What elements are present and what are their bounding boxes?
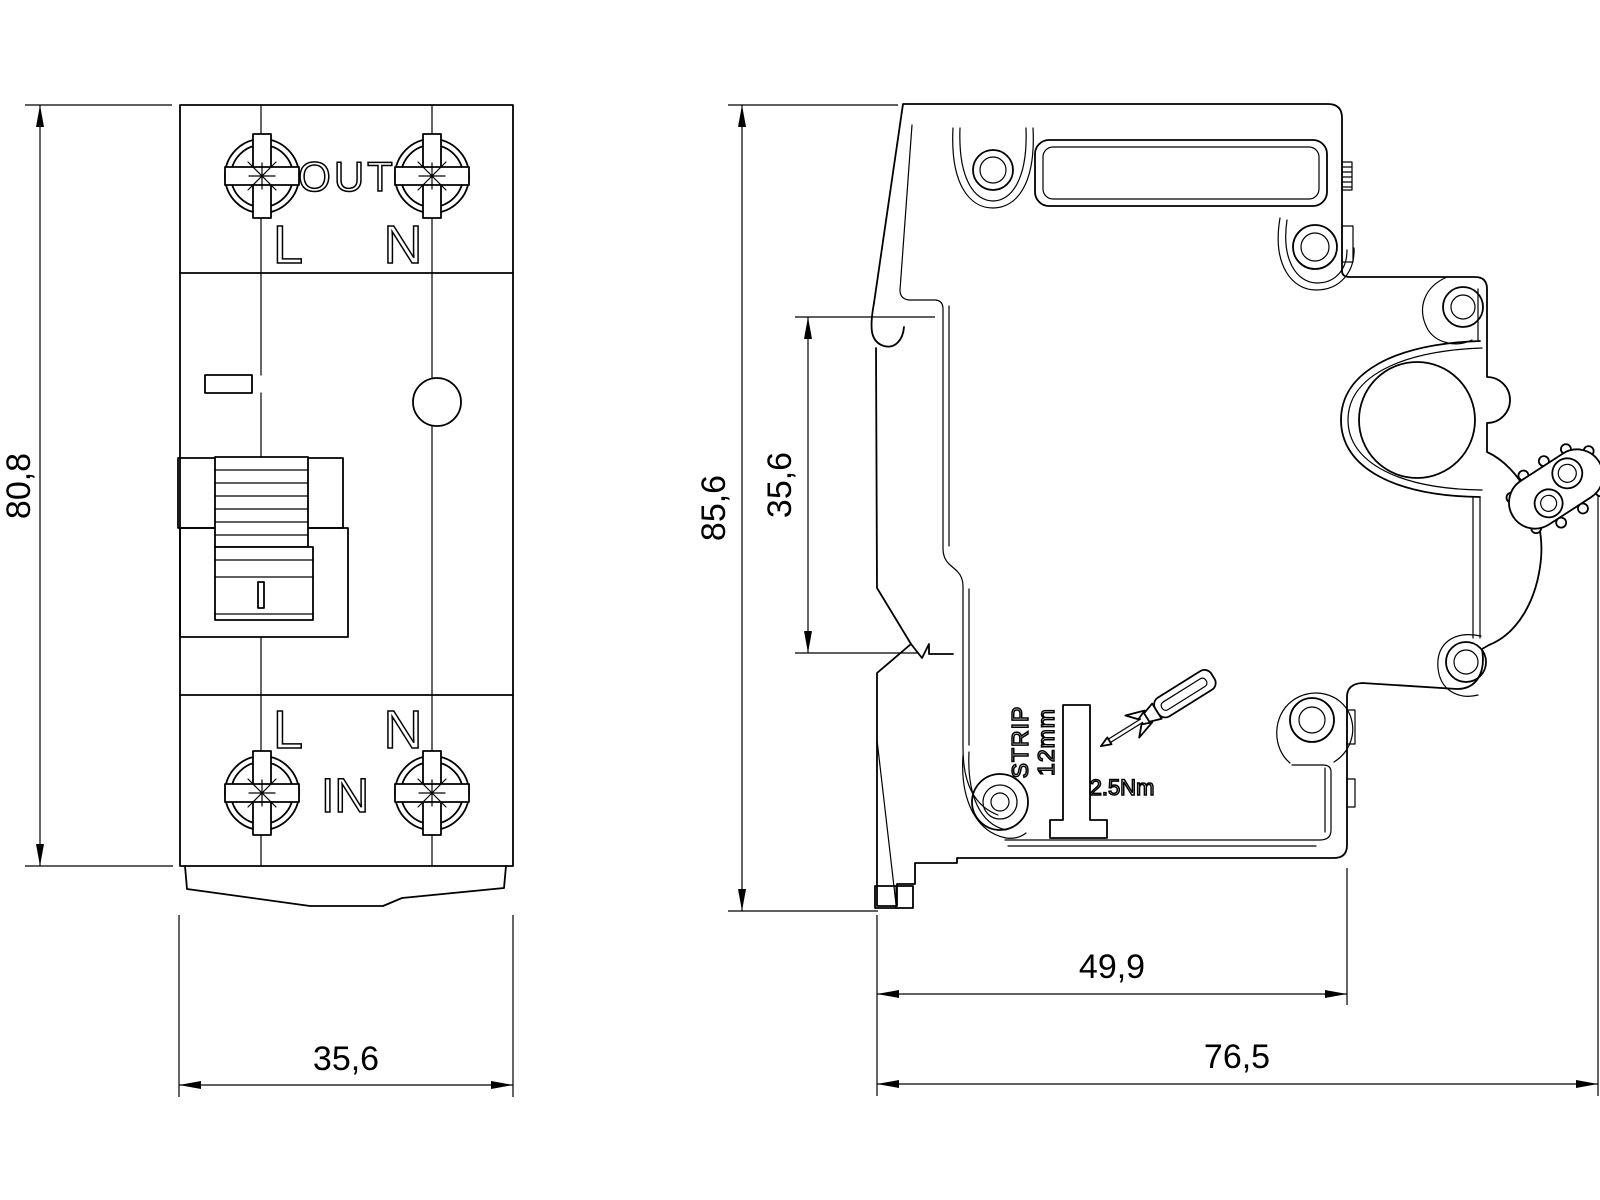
dim-text: 80,8	[0, 453, 38, 519]
dim-side-depth-total: 76,5	[877, 495, 1598, 1096]
side-body-outline	[874, 104, 1541, 906]
terminal-out-label: OUT	[298, 153, 396, 200]
rivet-outer	[972, 774, 1028, 830]
phillips-screw-out-n	[395, 134, 469, 218]
rivet-inner	[1454, 650, 1478, 674]
screwdriver-shaft	[1108, 719, 1142, 743]
terminal-in-label: IN	[321, 770, 369, 823]
screwdriver-tip	[1099, 737, 1112, 749]
arrowhead	[738, 889, 746, 911]
arrowhead	[1325, 990, 1347, 998]
rivet-inner	[980, 157, 1006, 183]
din-clip-front	[185, 866, 506, 906]
arrowhead	[804, 317, 812, 339]
rivet-boss-bottom-right	[1438, 635, 1486, 697]
adjuster-wheel	[1494, 430, 1600, 547]
rivet-outer	[1443, 287, 1483, 327]
dim-front-width: 35,6	[179, 915, 513, 1097]
rivet-boss-bottom-mid	[1277, 693, 1353, 763]
breaker-dimension-drawing: OUT L N L N IN	[0, 0, 1600, 1200]
strip-gauge-label-1: 12mm	[1033, 708, 1059, 776]
rivet-outer	[1290, 698, 1334, 742]
screwdriver-icon	[1094, 665, 1220, 757]
edge-lug	[1347, 779, 1355, 807]
arrowhead	[36, 844, 44, 866]
rivet-inner	[983, 785, 1017, 819]
phillips-screw-out-l	[225, 134, 299, 218]
dim-text: 76,5	[1204, 1038, 1270, 1076]
rivet-outer	[1446, 642, 1486, 682]
rib-block	[1342, 162, 1352, 190]
din-front-face	[876, 348, 911, 644]
line-label-top: L	[273, 215, 303, 275]
arrowhead	[491, 1081, 513, 1089]
din-top-hook	[871, 303, 904, 347]
arrowhead	[877, 990, 899, 998]
phillips-screw-in-l	[225, 751, 299, 835]
indicator-window	[413, 378, 461, 426]
rivet-outer	[1293, 225, 1337, 269]
arrowhead	[36, 105, 44, 127]
test-button	[205, 375, 252, 393]
neutral-label-bottom: N	[384, 700, 423, 760]
arrowhead	[179, 1081, 201, 1089]
edge-lug	[1342, 226, 1353, 262]
technical-drawing-page: OUT L N L N IN	[0, 0, 1600, 1200]
dim-front-height: 80,8	[0, 105, 173, 866]
arrowhead	[877, 1080, 899, 1088]
boss-pocket	[1286, 220, 1347, 283]
rear-clip-ribs	[1342, 162, 1352, 190]
strip-gauge-label-2: STRIP	[1007, 706, 1033, 779]
knob-bay-outer	[1341, 341, 1480, 497]
rivet-inner	[1301, 233, 1329, 261]
dim-text: 35,6	[313, 1040, 379, 1078]
boss-pocket	[953, 128, 1034, 208]
rivet-inner	[1299, 707, 1325, 733]
arrowhead	[1576, 1080, 1598, 1088]
rivet-boss-right	[1423, 277, 1483, 344]
dim-text: 35,6	[761, 452, 799, 518]
rivet-inner	[1451, 295, 1475, 319]
rivet-boss-top-left	[953, 128, 1034, 208]
dim-text: 85,6	[695, 475, 733, 541]
arrowhead	[738, 105, 746, 127]
din-clip-spring-edge	[877, 740, 896, 904]
side-view: 12mm STRIP 2.5Nm	[871, 104, 1600, 908]
front-view: OUT L N L N IN	[178, 105, 513, 906]
screwdriver-handle	[1151, 667, 1219, 721]
label-window-outer	[1035, 140, 1327, 206]
rib-lines	[1342, 167, 1352, 187]
arrowhead	[804, 631, 812, 653]
neutral-label-top: N	[384, 215, 423, 275]
line-label-bottom: L	[273, 700, 303, 760]
torque-label: 2.5Nm	[1090, 775, 1155, 800]
label-window-inner	[1043, 147, 1319, 199]
dim-text: 49,9	[1079, 948, 1145, 986]
dim-side-depth-rail: 49,9	[877, 868, 1347, 1096]
knob-circle	[1359, 362, 1475, 478]
rivet-outer	[973, 150, 1013, 190]
boss-pocket	[1277, 693, 1353, 763]
rivet-inner	[991, 793, 1009, 811]
phillips-screw-in-n	[395, 751, 469, 835]
toggle-switch	[178, 457, 348, 637]
dim-side-rail-recess: 35,6	[761, 317, 935, 653]
